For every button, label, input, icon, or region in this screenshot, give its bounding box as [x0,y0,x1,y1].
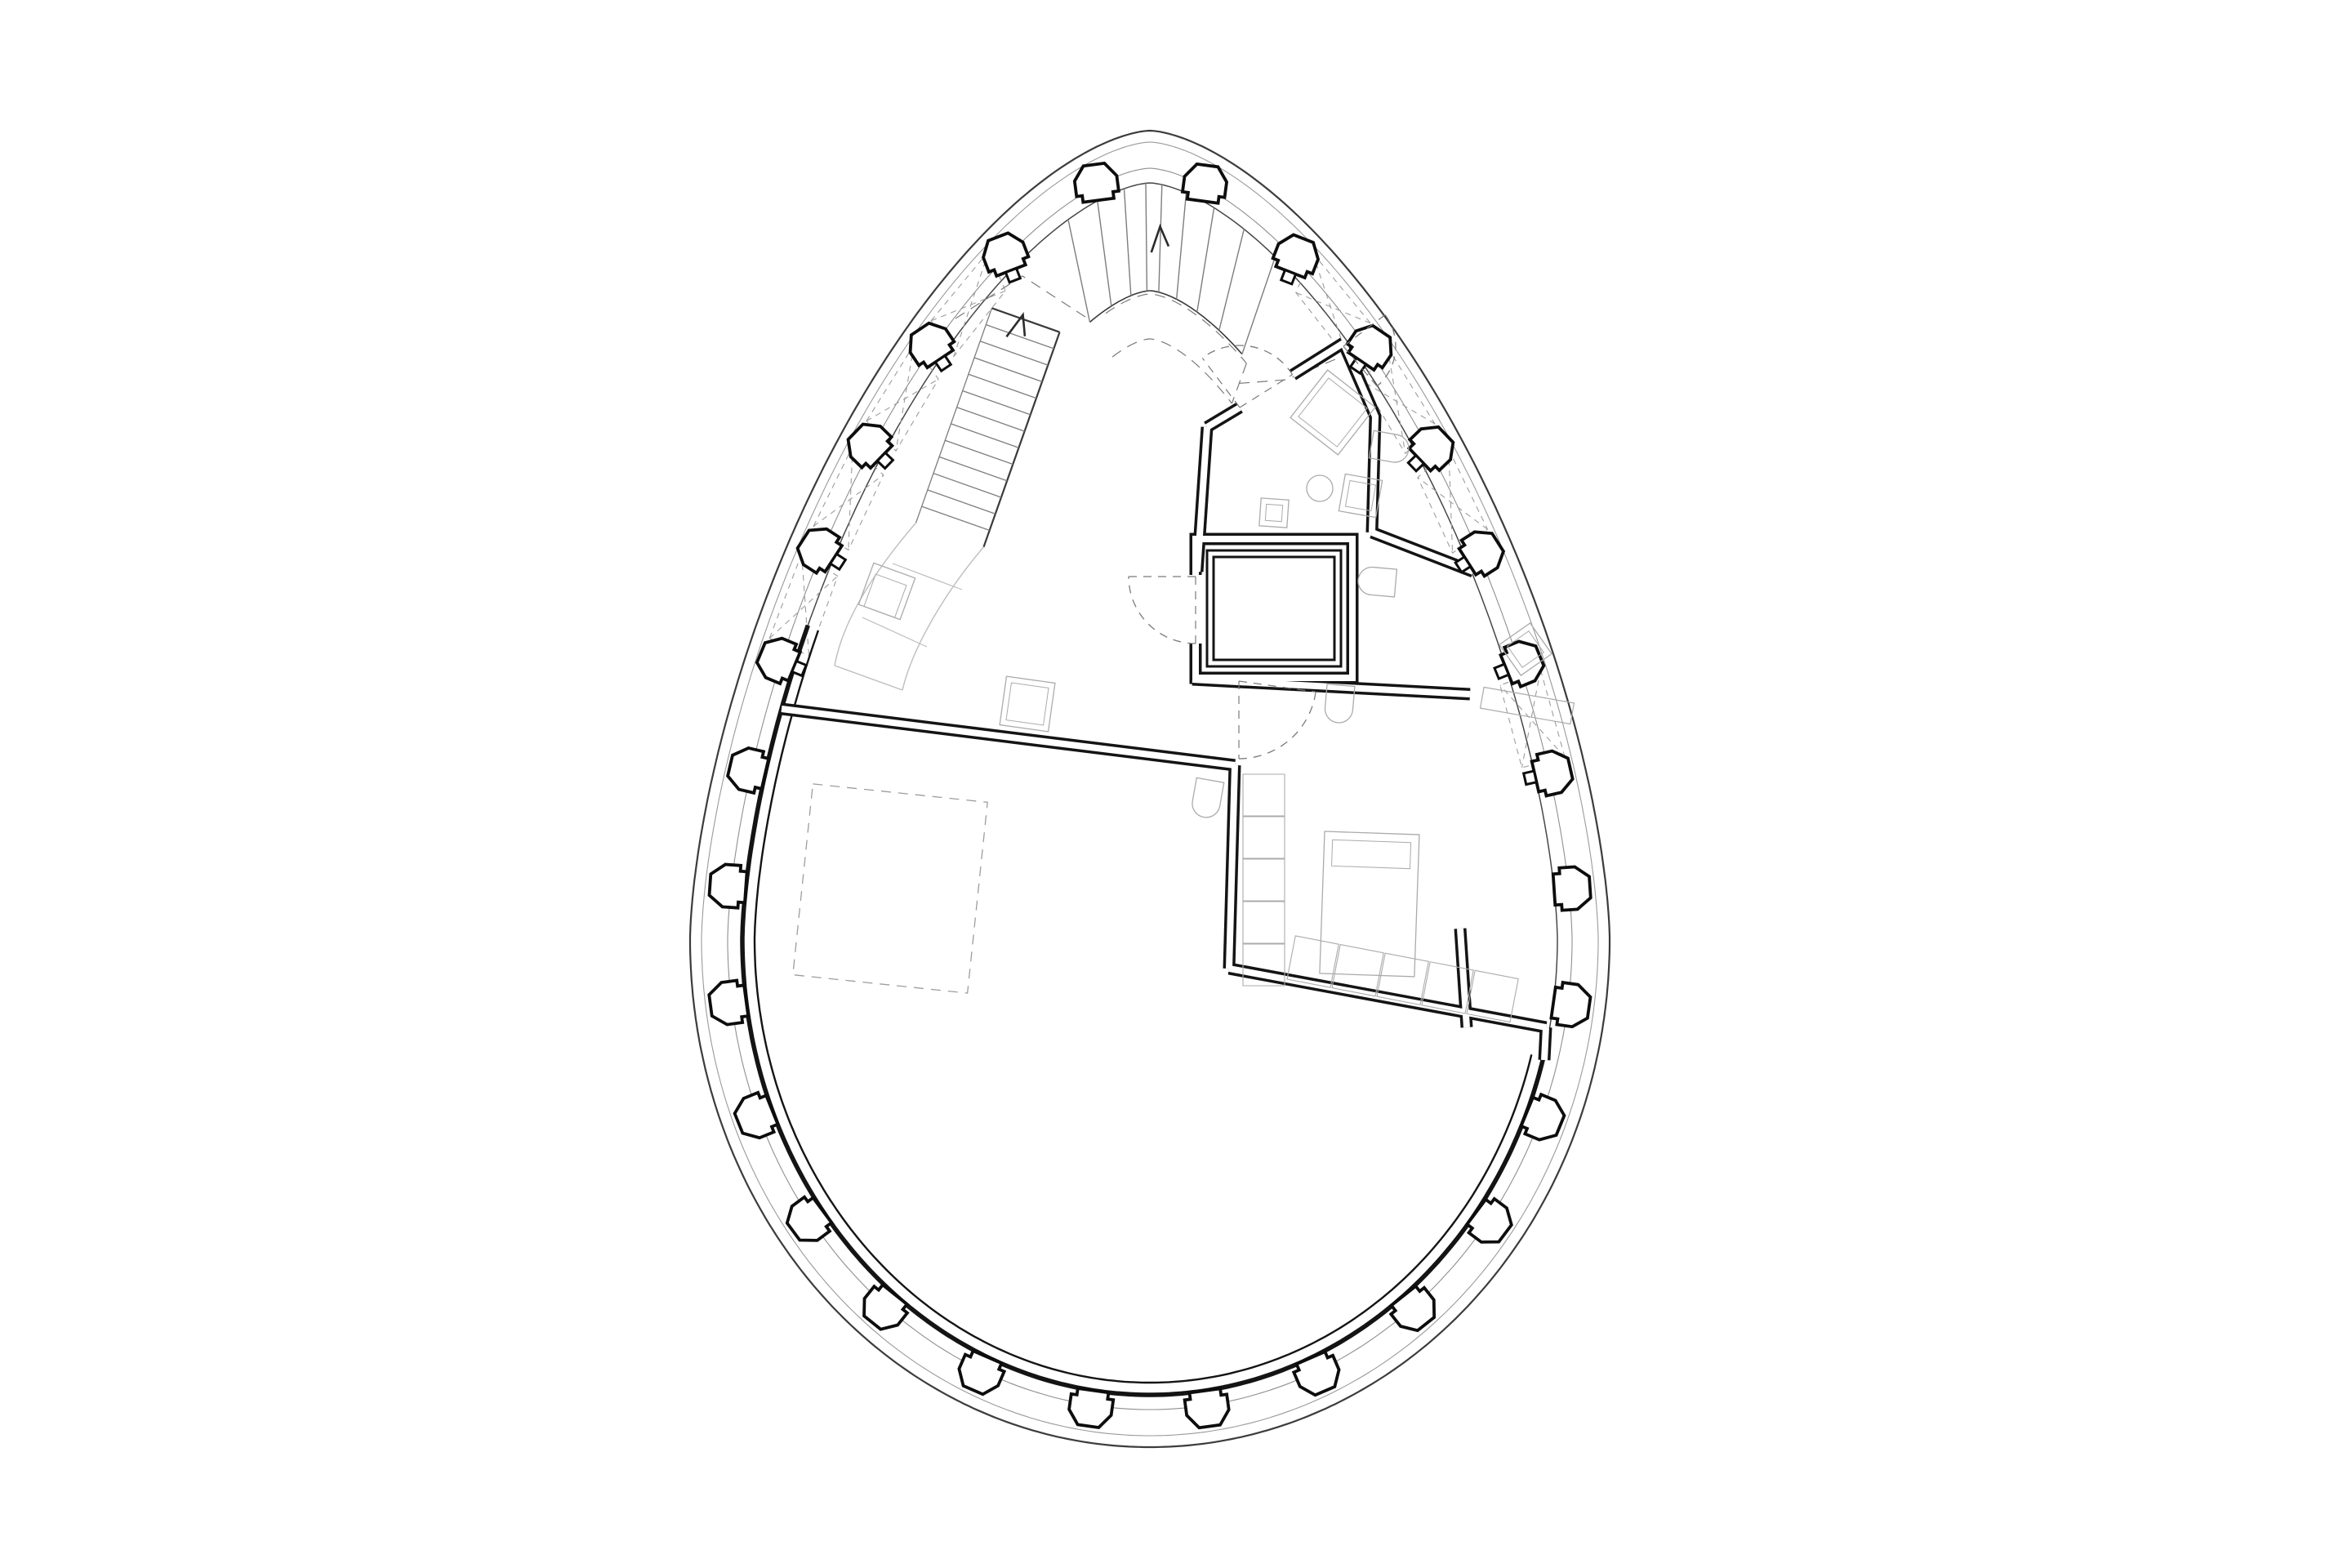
perimeter-column [1067,1388,1115,1429]
stair-tread [974,358,1042,381]
shell-line-1 [702,142,1598,1436]
perimeter-column-body [725,745,770,795]
perimeter-column-body [1184,1388,1231,1429]
bedroom-door-arc [1239,692,1316,759]
page-background [0,0,2352,1568]
main-stair-direction-arrow [1006,312,1031,342]
bed-outline-dashed [793,784,987,993]
bed-pillow [1332,840,1411,868]
fan-stair-tread [1068,220,1090,323]
perimeter-column-body [708,979,750,1026]
perimeter-column [1463,1195,1517,1250]
perimeter-column [1447,524,1509,586]
armchair-seat [864,574,906,617]
perimeter-column-body [1552,866,1591,911]
perimeter-column-body [954,1348,1007,1398]
perimeter-column-body [753,633,803,686]
stair-tread [969,374,1036,398]
stair-top-cap [992,308,1060,332]
perimeter-column [781,1193,835,1249]
armchair [858,563,915,619]
shelf-outline [1481,687,1575,724]
floor-drain [1307,475,1333,501]
bathroom-door-arc [1202,345,1292,375]
perimeter-column-body [856,1281,911,1336]
elevator-shaft-outer-core [1196,539,1352,678]
shell-line-0 [690,131,1610,1447]
washbasin-outline [1259,498,1289,528]
washbasin-inner [1265,504,1282,521]
elevator-shaft-outer [1196,539,1352,678]
stair-landing-outer [835,523,916,666]
closet-row [1287,936,1518,1022]
perimeter-column-body [1291,1349,1344,1399]
living-room-north-wall-core [782,709,1235,765]
perimeter-column [1520,748,1575,800]
perimeter-column [954,1348,1007,1398]
stair-landing-cap [835,666,902,690]
fan-stair-tread [1177,193,1187,299]
stair-tread [933,474,1001,497]
perimeter-column [1387,1283,1442,1338]
stair-tread [951,424,1018,448]
fan-stair-tread [1159,185,1162,292]
stair-tread [939,457,1007,480]
stair-landing-inner [902,547,984,690]
perimeter-column-body [1550,982,1592,1029]
perimeter-column-body [1067,1388,1115,1429]
perimeter-column [725,745,770,795]
stair-tread [928,490,996,514]
stair-landing-step [893,563,962,590]
perimeter-column-body [1530,748,1575,797]
side-table-inner [1006,683,1049,725]
bed-outline [1320,831,1419,977]
toilet [1357,566,1397,597]
stair-landing-step [862,617,927,647]
egg-floor-plan [0,0,2352,1568]
closet-unit [1243,774,1285,816]
perimeter-column-body [709,863,748,908]
closet-unit [1243,817,1285,858]
fan-stair [955,183,1335,403]
perimeter-column-body [1463,1195,1517,1250]
bedroom-south-wall-core [1229,969,1546,1027]
stair-tread [963,391,1031,415]
facade-shell [690,131,1610,1447]
furniture [793,370,1575,993]
fan-stair-tread [1146,183,1147,291]
bathroom-northwest-wall-b-core [1293,343,1343,375]
fan-stair-tread [1219,229,1245,331]
stair-tread [986,325,1053,349]
perimeter-column-body [1387,1283,1442,1338]
perimeter-column [1552,866,1591,911]
bed [1320,831,1419,977]
perimeter-column [709,863,748,908]
fan-stair-tread [1125,189,1131,296]
shelf [1481,687,1575,724]
side-table [1000,676,1055,732]
hall-door-arc [1129,577,1196,644]
fan-stair-tread [1242,257,1276,354]
closet-unit [1243,859,1285,901]
shell-line-2 [728,168,1572,1410]
washbasin-oval [1190,777,1223,819]
perimeter-column-tab [1494,664,1508,679]
overhead-void-dashed-1 [1112,339,1232,403]
perimeter-column [856,1281,911,1336]
fan-stair-inner-edge [1090,291,1242,354]
perimeter-column [841,416,904,479]
stair-arrows [1006,226,1169,342]
perimeter-column-tab [1524,771,1537,785]
perimeter-column [1397,419,1460,482]
perimeter-column-body [1271,231,1323,280]
fan-stair-tread [1197,207,1214,312]
elevator-shaft-inner-core [1210,554,1338,663]
perimeter-column-body [978,229,1031,278]
perimeter-column-body [1499,636,1548,689]
closet-unit [1243,902,1285,943]
stair-tread [957,408,1025,431]
washbasin [1259,498,1289,528]
perimeter-column-body [781,1193,835,1249]
stair-tread [980,341,1048,365]
toilet-bowl [1357,566,1397,597]
perimeter-column [708,979,750,1026]
perimeter-column [1550,982,1592,1029]
washbasin-oval-bowl [1190,777,1223,819]
closets [1243,774,1518,1022]
stair-tread [922,506,990,530]
perimeter-column [1291,1349,1344,1399]
fan-stair-tread [1098,201,1111,306]
bathroom-door-arc-leaf [1202,358,1240,408]
stair-tread [945,440,1013,464]
perimeter-column-tab [1005,269,1020,283]
bedroom-partition-stub-core [1544,1027,1546,1060]
perimeter-column [1184,1388,1231,1429]
bed-outline-dashed [793,784,987,993]
perimeter-column [792,521,854,582]
elevator-shaft-inner [1210,554,1338,663]
armchair-outline [858,563,915,619]
perimeter-column-tab [1281,270,1296,284]
